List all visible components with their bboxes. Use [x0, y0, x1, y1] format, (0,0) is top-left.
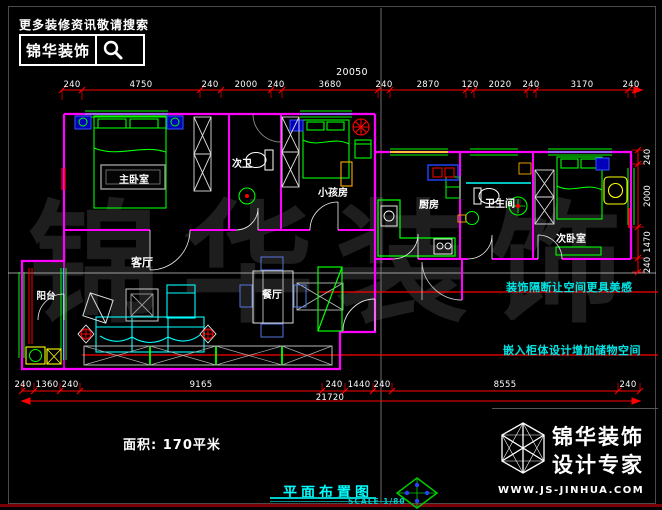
room-label-second-bedroom: 次卧室: [556, 230, 586, 245]
dim-top-seg: 120: [461, 80, 478, 90]
annotation-decor-partition: 装饰隔断让空间更具美感: [506, 279, 633, 295]
second-bedroom-chair: [604, 177, 627, 204]
balcony-items: [26, 268, 61, 364]
room-label-kitchen: 厨房: [419, 196, 439, 211]
dim-top-seg: 240: [375, 80, 392, 90]
company-website: WWW.JS-JINHUA.COM: [498, 485, 644, 496]
room-label-second-bath: 次卫: [232, 155, 252, 170]
dim-bottom-seg: 9165: [190, 380, 213, 390]
dim-top-seg: 2020: [489, 80, 512, 90]
coffee-table: [126, 289, 158, 321]
dim-top-total: 20050: [336, 67, 368, 78]
dim-top-seg: 240: [522, 80, 539, 90]
dim-bottom-total: 21720: [316, 393, 345, 403]
dim-bottom-seg: 240: [325, 380, 342, 390]
dim-bottom-seg: 1440: [348, 380, 371, 390]
dim-right-seg: 2000: [643, 185, 653, 207]
dim-bottom-seg: 8555: [494, 380, 517, 390]
dim-right-seg: 1470: [643, 231, 653, 253]
ceiling-fan-symbol: [353, 119, 369, 135]
dim-bottom-seg: 1360: [36, 380, 59, 390]
kitchen-counter: [378, 177, 460, 256]
second-bedroom-wardrobe-hatch: [535, 170, 554, 224]
room-label-dining-room: 餐厅: [262, 286, 282, 301]
scale-label: SCALE 1/80: [348, 497, 406, 506]
room-label-master-bedroom: 主卧室: [119, 171, 149, 186]
header-brand-name: 锦华装饰: [21, 40, 95, 61]
sofa-side-tables: [78, 325, 216, 343]
dim-bottom-seg: 240: [619, 380, 636, 390]
dim-bottom-seg: 240: [61, 380, 78, 390]
dim-bottom-seg: 240: [14, 380, 31, 390]
company-branding-block: 锦华装饰 设计专家 WWW.JS-JINHUA.COM: [492, 408, 658, 504]
area-label: 面积: 170平米: [123, 434, 221, 453]
room-label-balcony: 阳台: [36, 288, 55, 302]
header-brand-box: 锦华装饰: [19, 34, 145, 66]
dim-right-seg: 240: [643, 257, 653, 273]
entry-shoe-cabinet: [318, 267, 342, 331]
second-bedroom-nightstand: [596, 158, 609, 170]
dim-top-seg: 4750: [130, 80, 153, 90]
company-subtitle: 设计专家: [552, 449, 644, 479]
room-label-bathroom: 卫生间: [485, 195, 515, 210]
master-bed: [94, 116, 166, 208]
dining-cabinet-hatch: [297, 283, 343, 310]
dim-top-seg: 3170: [571, 80, 594, 90]
accent-chair: [83, 293, 113, 323]
dim-top-seg: 2870: [417, 80, 440, 90]
sofa: [96, 285, 204, 352]
dim-top-seg: 240: [622, 80, 639, 90]
room-label-kids-room: 小孩房: [318, 184, 348, 199]
fridge-symbol: [428, 165, 458, 180]
company-name: 锦华装饰: [552, 421, 644, 451]
dim-bottom-seg: 240: [373, 380, 390, 390]
dim-top-seg: 3680: [319, 80, 342, 90]
magnifier-icon: [97, 36, 129, 64]
dim-top-seg: 2000: [235, 80, 258, 90]
annotation-storage-cabinet: 嵌入柜体设计增加储物空间: [503, 342, 641, 358]
cad-floorplan-sheet: 锦华装饰: [0, 0, 662, 510]
door-arcs: [38, 202, 562, 320]
dim-right-seg: 240: [643, 149, 653, 165]
entry-door-arc: [343, 262, 462, 331]
master-nightstands: [75, 116, 183, 129]
bathroom-fixtures: [458, 163, 531, 225]
master-wardrobe-hatch: [194, 117, 211, 191]
cube-logo-icon: [496, 419, 550, 479]
dim-top-seg: 240: [201, 80, 218, 90]
room-label-living-room: 客厅: [131, 254, 153, 270]
header-tagline: 更多装修资讯敬请搜索: [19, 16, 149, 33]
dim-top-seg: 240: [63, 80, 80, 90]
dim-top-seg: 240: [267, 80, 284, 90]
